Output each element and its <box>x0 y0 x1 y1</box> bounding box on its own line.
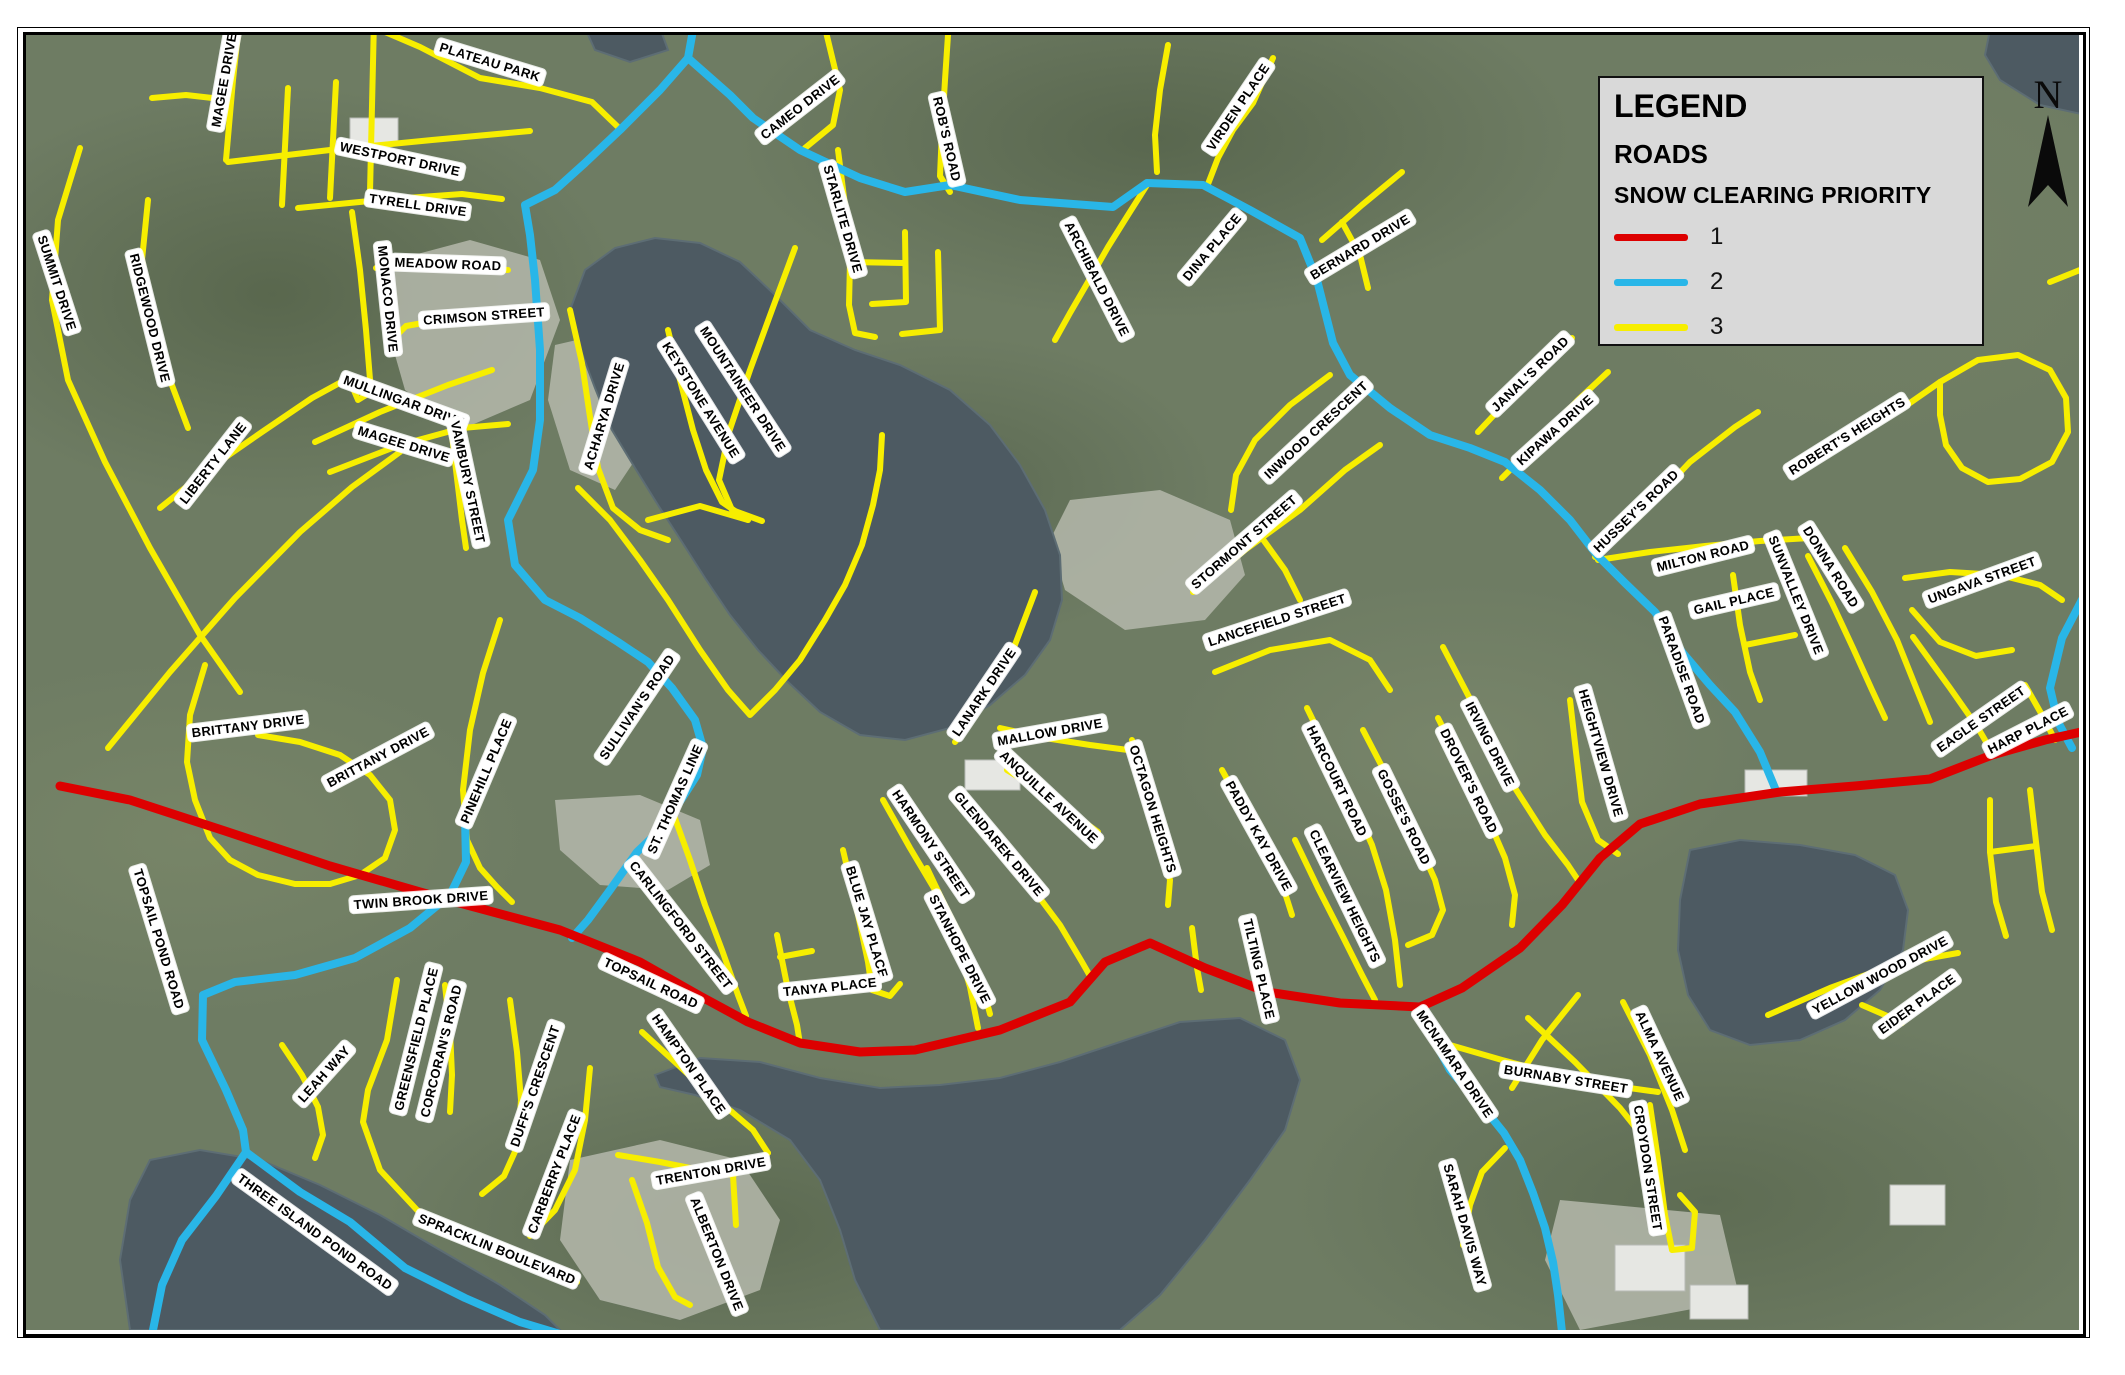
road-priority3-roberts-loop <box>1940 355 2068 482</box>
legend-priority-number: 2 <box>1710 268 1723 296</box>
legend-priority-number: 1 <box>1710 223 1723 251</box>
road-priority3-right-v1 <box>1990 800 2006 936</box>
legend-subheading: SNOW CLEARING PRIORITY <box>1614 182 1968 209</box>
road-priority3-plateau-park <box>385 35 618 127</box>
map-canvas: MAGEE DRIVEPLATEAU PARKWESTPORT DRIVETYR… <box>26 35 2079 1330</box>
legend-item-2: 2 <box>1614 268 1968 296</box>
legend-swatch-priority-3 <box>1614 324 1688 331</box>
north-arrow-icon <box>2026 115 2070 211</box>
road-priority3-liberty-sw <box>108 452 400 748</box>
road-priority3-inwood-crescent <box>1231 375 1330 510</box>
road-priority3-trenton-spur <box>733 1175 736 1225</box>
road-priority3-right-v2 <box>2030 790 2052 930</box>
legend-item-1: 1 <box>1614 223 1968 251</box>
legend-heading: ROADS <box>1614 139 1968 170</box>
legend-box: LEGEND ROADS SNOW CLEARING PRIORITY 123 <box>1598 76 1984 346</box>
road-priority3-grid-3 <box>370 35 374 192</box>
legend-swatch-priority-1 <box>1614 234 1688 241</box>
road-priority3-lancefield-street <box>1215 640 1390 690</box>
north-label: N <box>2018 75 2078 115</box>
building-2 <box>1890 1185 1945 1225</box>
road-priority3-ungava-s <box>1912 610 2012 656</box>
water-magee-pond <box>585 35 668 62</box>
water-big-pond <box>570 238 1062 740</box>
legend-priority-number: 3 <box>1710 313 1723 341</box>
road-priority3-duffs-crescent <box>482 1000 521 1194</box>
road-priority3-gosses-road <box>1363 730 1443 945</box>
road-priority3-right-link <box>1990 846 2036 852</box>
road-priority3-monaco-drive <box>352 212 371 400</box>
building-1 <box>1690 1285 1748 1319</box>
north-arrow: N <box>2018 75 2078 216</box>
legend-swatch-priority-2 <box>1614 279 1688 286</box>
road-priority3-starlite-e2 <box>872 232 906 304</box>
road-priority3-stormont-spur <box>1262 538 1300 600</box>
road-priority3-gail-spur <box>1745 635 1795 645</box>
snow-clearing-priority-map: MAGEE DRIVEPLATEAU PARKWESTPORT DRIVETYR… <box>0 0 2125 1375</box>
legend-title: LEGEND <box>1614 88 1968 125</box>
road-priority3-tanya-spur <box>780 951 812 957</box>
road-priority3-grid-2 <box>330 82 336 198</box>
road-priority3-tr-curl-1 <box>2050 266 2079 282</box>
road-priority3-grid-1 <box>282 88 288 205</box>
road-priority3-virden-w <box>1155 45 1168 172</box>
road-priority3-brittany-w <box>187 665 330 884</box>
legend-rows: 123 <box>1614 223 1968 341</box>
legend-item-3: 3 <box>1614 313 1968 341</box>
water-east-pond <box>1678 840 1908 1045</box>
